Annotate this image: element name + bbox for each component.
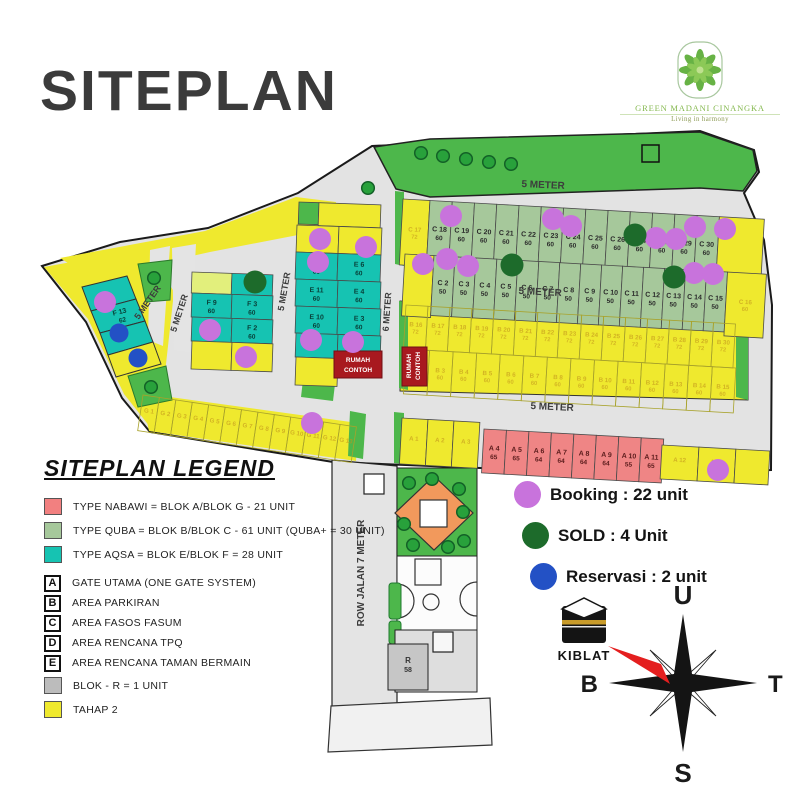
compass-south-label: S — [674, 758, 691, 788]
kaaba-icon: KIBLAT — [558, 598, 611, 663]
compass-kiblat: U T S B KIBLAT — [0, 0, 800, 800]
siteplan-page: SITEPLAN — [0, 0, 800, 800]
kiblat-needle — [608, 646, 670, 684]
kiblat-label: KIBLAT — [558, 648, 611, 663]
compass-west-label: B — [581, 671, 598, 698]
compass-north-label: U — [674, 580, 693, 610]
compass-east-label: T — [768, 671, 783, 698]
compass-rose-icon: U T S B — [581, 580, 783, 788]
